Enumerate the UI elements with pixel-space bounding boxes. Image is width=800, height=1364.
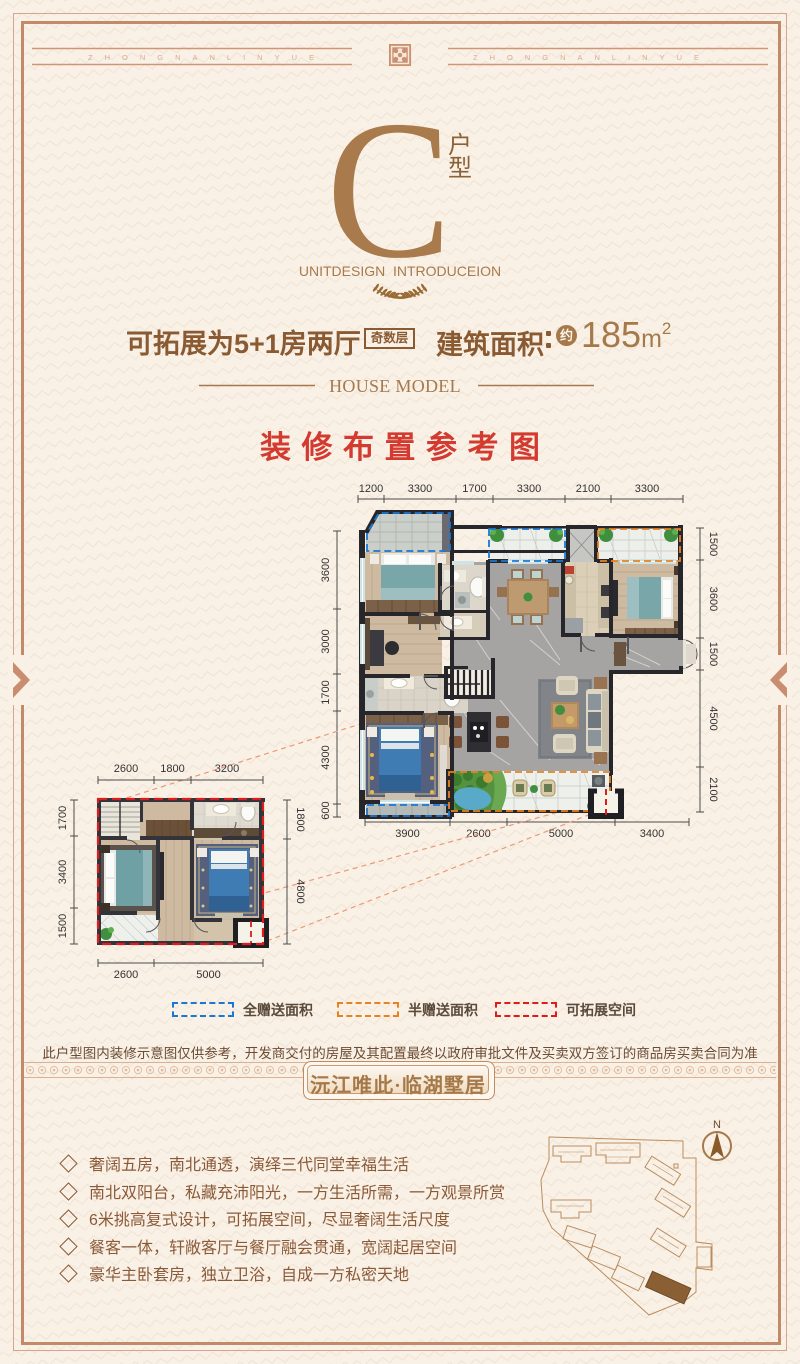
svg-text:N: N bbox=[713, 1119, 721, 1131]
